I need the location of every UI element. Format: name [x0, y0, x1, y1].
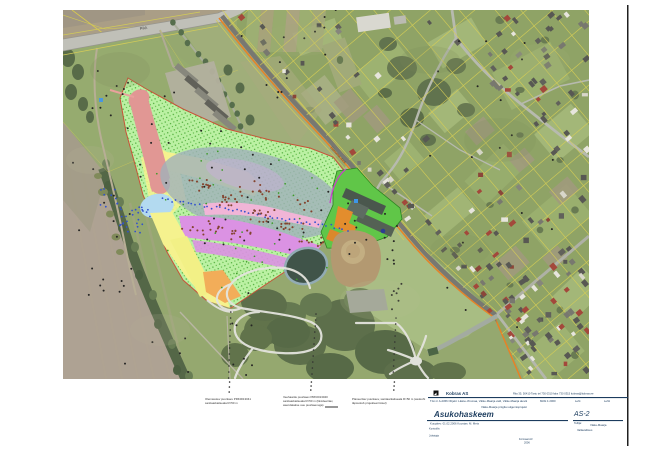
svg-text:AS-2: AS-2 — [573, 411, 590, 418]
svg-text:Tellija:: Tellija: — [574, 421, 582, 425]
svg-text:sanitaarkaitseala R=50 m: sanitaarkaitseala R=50 m — [205, 401, 238, 405]
svg-text:Vallavalitsus: Vallavalitsus — [577, 428, 593, 432]
svg-text:Leht: Leht — [575, 399, 581, 403]
svg-text:Kobras AS: Kobras AS — [446, 391, 468, 396]
svg-text:Riia 35, 50410 Tartu tel 730: Riia 35, 50410 Tartu tel 730 0310 faks 7… — [513, 392, 594, 396]
svg-text:Juhataja: Juhataja — [429, 434, 439, 438]
svg-text:Lehti: Lehti — [604, 399, 610, 403]
svg-text:Kontrollis: Kontrollis — [429, 427, 440, 431]
svg-text:2006: 2006 — [524, 441, 530, 445]
svg-text:Töö nr A-2366 Objekt: Lääne-V: Töö nr A-2366 Objekt: Lääne-Virumaa, Väi… — [430, 399, 528, 403]
svg-text:Asukohaskeem: Asukohaskeem — [433, 410, 494, 419]
svg-text:Väike-Maarja: Väike-Maarja — [590, 423, 607, 427]
svg-text:Mõõt 1:2000: Mõõt 1:2000 — [540, 399, 556, 403]
svg-text:asendatakse uue puurkaevuga): asendatakse uue puurkaevuga) — [283, 403, 324, 407]
svg-text:Väike-Maarja prügila sulgemisp: Väike-Maarja prügila sulgemisprojekt — [481, 405, 527, 409]
svg-text:täpsustub projekteerimisel): täpsustub projekteerimisel) — [352, 401, 387, 405]
svg-text:Kuupäev: 01.02.2006 Koostas:: Kuupäev: 01.02.2006 Koostas: M. Mets — [430, 422, 480, 426]
svg-text:Formaat A3: Formaat A3 — [519, 437, 533, 441]
